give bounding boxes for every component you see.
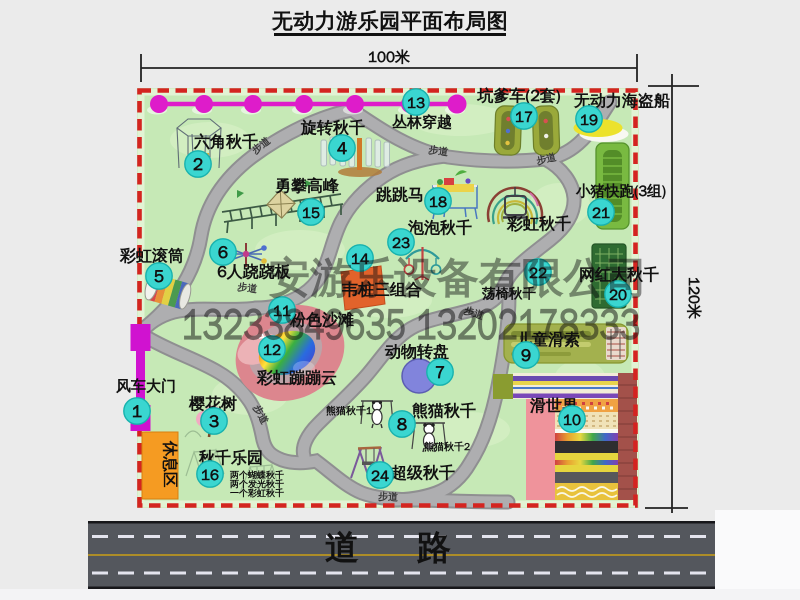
svg-text:一个彩虹秋千: 一个彩虹秋千 [230,487,284,499]
svg-text:13233849635 13202178333: 13233849635 13202178333 [182,298,640,352]
svg-text:无动力游乐园平面布局图: 无动力游乐园平面布局图 [271,9,509,35]
svg-text:100米: 100米 [368,49,411,67]
svg-text:10: 10 [563,412,581,430]
svg-text:道: 道 [325,527,359,570]
svg-text:旋转秋千: 旋转秋千 [300,118,365,138]
svg-text:彩虹秋千: 彩虹秋千 [506,214,571,234]
svg-text:24: 24 [371,468,389,486]
svg-text:勇攀高峰: 勇攀高峰 [274,176,340,196]
svg-text:17: 17 [515,109,533,127]
svg-text:8: 8 [397,415,407,436]
svg-text:1: 1 [132,402,142,423]
svg-text:坑爹车(2套): 坑爹车(2套) [476,86,560,106]
svg-text:六角秋千: 六角秋千 [193,132,258,152]
svg-text:步道: 步道 [377,489,400,503]
svg-text:风车大门: 风车大门 [115,377,176,396]
svg-text:熊猫秋千2: 熊猫秋千2 [424,440,470,453]
svg-text:熊猫秋千: 熊猫秋千 [412,401,476,421]
svg-text:120米: 120米 [684,277,702,320]
svg-text:3: 3 [209,412,219,433]
svg-text:6: 6 [218,243,228,264]
svg-text:熊猫秋千1: 熊猫秋千1 [326,404,372,417]
svg-text:16: 16 [201,467,219,485]
svg-text:21: 21 [592,205,610,223]
svg-text:13: 13 [407,95,425,113]
svg-text:7: 7 [435,363,445,384]
svg-text:18: 18 [429,194,447,212]
svg-text:4: 4 [337,139,347,160]
svg-text:彩虹滚筒: 彩虹滚筒 [119,246,184,266]
svg-text:超级秋千: 超级秋千 [390,463,455,483]
svg-text:跳跳马: 跳跳马 [375,185,424,205]
svg-text:2: 2 [193,155,203,176]
svg-text:彩虹蹦蹦云: 彩虹蹦蹦云 [256,368,337,388]
svg-text:路: 路 [416,527,451,570]
svg-text:23: 23 [392,235,410,253]
svg-text:19: 19 [580,112,598,130]
svg-text:休息区: 休息区 [160,440,180,488]
svg-text:丛林穿越: 丛林穿越 [391,113,452,132]
svg-text:小猪快跑(3组): 小猪快跑(3组) [575,183,666,201]
svg-text:15: 15 [302,205,320,223]
svg-text:5: 5 [154,267,164,288]
svg-text:泡泡秋千: 泡泡秋千 [407,218,472,238]
